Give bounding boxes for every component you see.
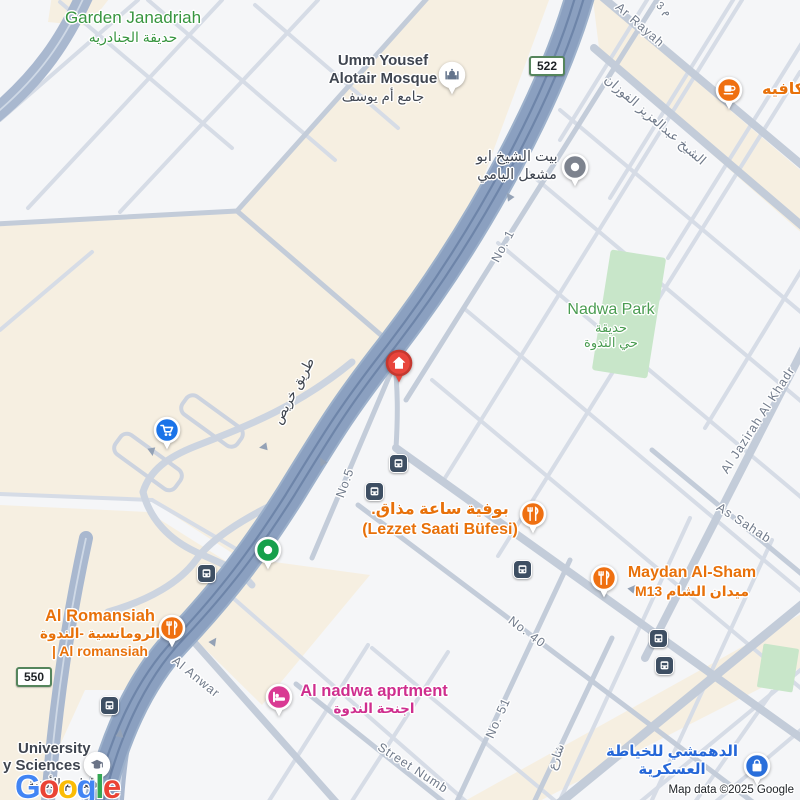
bus-stop-icon[interactable]: [365, 482, 384, 501]
bus-icon: [393, 458, 404, 469]
marker-lezzet-pin[interactable]: [516, 499, 550, 550]
basemap: [0, 0, 800, 800]
cart-icon: [150, 415, 184, 461]
bus-icon: [659, 660, 670, 671]
bus-stop-icon[interactable]: [100, 696, 119, 715]
bus-stop-icon[interactable]: [649, 629, 668, 648]
google-logo-letter: G: [15, 768, 39, 800]
poi-label-romansiah-label[interactable]: Al Romansiahالرومانسية -الندوة| Al roman…: [40, 606, 160, 660]
poi-label-line: Maydan Al-Sham: [628, 563, 756, 583]
poi-label-line: ميدان الشام M13: [628, 583, 756, 600]
map-canvas[interactable]: Ar Rayahم 3الشيخ عبدالعزيز الفوزانطريق خ…: [0, 0, 800, 800]
poi-label-line: حي الندوة: [567, 335, 654, 351]
bus-icon: [369, 486, 380, 497]
route-badge-550: 550: [16, 667, 52, 687]
poi-label-line: | Al romansiah: [40, 643, 160, 660]
bus-stop-icon[interactable]: [197, 564, 216, 583]
poi-label-cafe-label[interactable]: ن كافيه: [762, 80, 800, 100]
poi-label-line: حديقة الجنادريه: [65, 29, 201, 46]
google-logo-letter: o: [58, 768, 77, 800]
poi-label-line: بوفية ساعة مذاق.: [362, 500, 518, 520]
poi-label-line: العسكرية: [606, 761, 738, 779]
poi-label-maydan-label[interactable]: Maydan Al-Shamميدان الشام M13: [628, 563, 756, 600]
google-logo-letter: e: [103, 768, 120, 800]
poi-label-line: Al nadwa aprtment: [300, 681, 448, 701]
marker-romansiah-pin[interactable]: [155, 613, 189, 664]
cafe-icon: [712, 75, 746, 121]
home-icon: [382, 348, 416, 394]
google-logo-letter: g: [77, 768, 96, 800]
marker-green-dot-pin[interactable]: [251, 535, 285, 586]
direction-arrow-icon: [258, 442, 267, 451]
poi-label-line: Nadwa Park: [567, 300, 654, 320]
poi-label-line: اجنحة الندوة: [300, 701, 448, 717]
map-attribution[interactable]: Map data ©2025 Google: [669, 784, 794, 796]
poi-label-line: الدهمشي للخياطة: [606, 743, 738, 761]
marker-home-pin[interactable]: [382, 348, 416, 399]
poi-label-dahmashi-label[interactable]: الدهمشي للخياطةالعسكرية: [606, 743, 738, 780]
poi-label-line: Al Romansiah: [40, 606, 160, 626]
marker-sheikh-house-pin[interactable]: [558, 152, 592, 203]
route-badge-522: 522: [529, 56, 565, 76]
bed-icon: [262, 682, 296, 728]
restaurant-icon: [587, 563, 621, 609]
poi-label-line: جامع أم يوسف: [329, 89, 437, 105]
poi-label-line: الرومانسية -الندوة: [40, 626, 160, 642]
bus-icon: [653, 633, 664, 644]
google-logo[interactable]: Google: [15, 768, 120, 800]
marker-cafe-pin[interactable]: [712, 75, 746, 126]
marker-maydan-pin[interactable]: [587, 563, 621, 614]
poi-label-line: مشعل اليامي: [476, 167, 557, 185]
poi-label-umm-yousef-mosque-label[interactable]: Umm YousefAlotair Mosqueجامع أم يوسف: [329, 52, 437, 105]
poi-label-line: بيت الشيخ ابو: [476, 149, 557, 167]
bus-stop-icon[interactable]: [389, 454, 408, 473]
bus-icon: [201, 568, 212, 579]
poi-label-nadwa-park-label[interactable]: Nadwa Parkحديقةحي الندوة: [567, 300, 654, 351]
poi-label-line: ن كافيه: [762, 80, 800, 100]
direction-arrow-icon: [115, 728, 124, 737]
poi-label-garden-janadriah-label[interactable]: Garden Janadriahحديقة الجنادريه: [65, 8, 201, 46]
marker-mosque-pin[interactable]: [435, 60, 469, 111]
poi-label-line: Garden Janadriah: [65, 8, 201, 29]
bus-stop-icon[interactable]: [513, 560, 532, 579]
poi-label-line: (Lezzet Saati Büfesi): [362, 520, 518, 540]
marker-shopping-cart-pin[interactable]: [150, 415, 184, 466]
poi-label-lezzet-label[interactable]: بوفية ساعة مذاق.(Lezzet Saati Büfesi): [362, 500, 518, 539]
dot-icon: [558, 152, 592, 198]
poi-label-nadwa-apartment-label[interactable]: Al nadwa aprtmentاجنحة الندوة: [300, 681, 448, 718]
marker-apartment-pin[interactable]: [262, 682, 296, 733]
bus-stop-icon[interactable]: [655, 656, 674, 675]
bus-icon: [104, 700, 115, 711]
restaurant-icon: [155, 613, 189, 659]
poi-label-line: حديقة: [567, 320, 654, 336]
google-logo-letter: o: [39, 768, 58, 800]
mosque-icon: [435, 60, 469, 106]
poi-label-line: Umm Yousef: [329, 52, 437, 70]
dot-icon: [251, 535, 285, 581]
bus-icon: [517, 564, 528, 575]
poi-label-sheikh-house-label[interactable]: بيت الشيخ ابومشعل اليامي: [476, 149, 557, 184]
poi-label-line: Alotair Mosque: [329, 70, 437, 88]
google-logo-letter: l: [95, 768, 103, 800]
restaurant-icon: [516, 499, 550, 545]
